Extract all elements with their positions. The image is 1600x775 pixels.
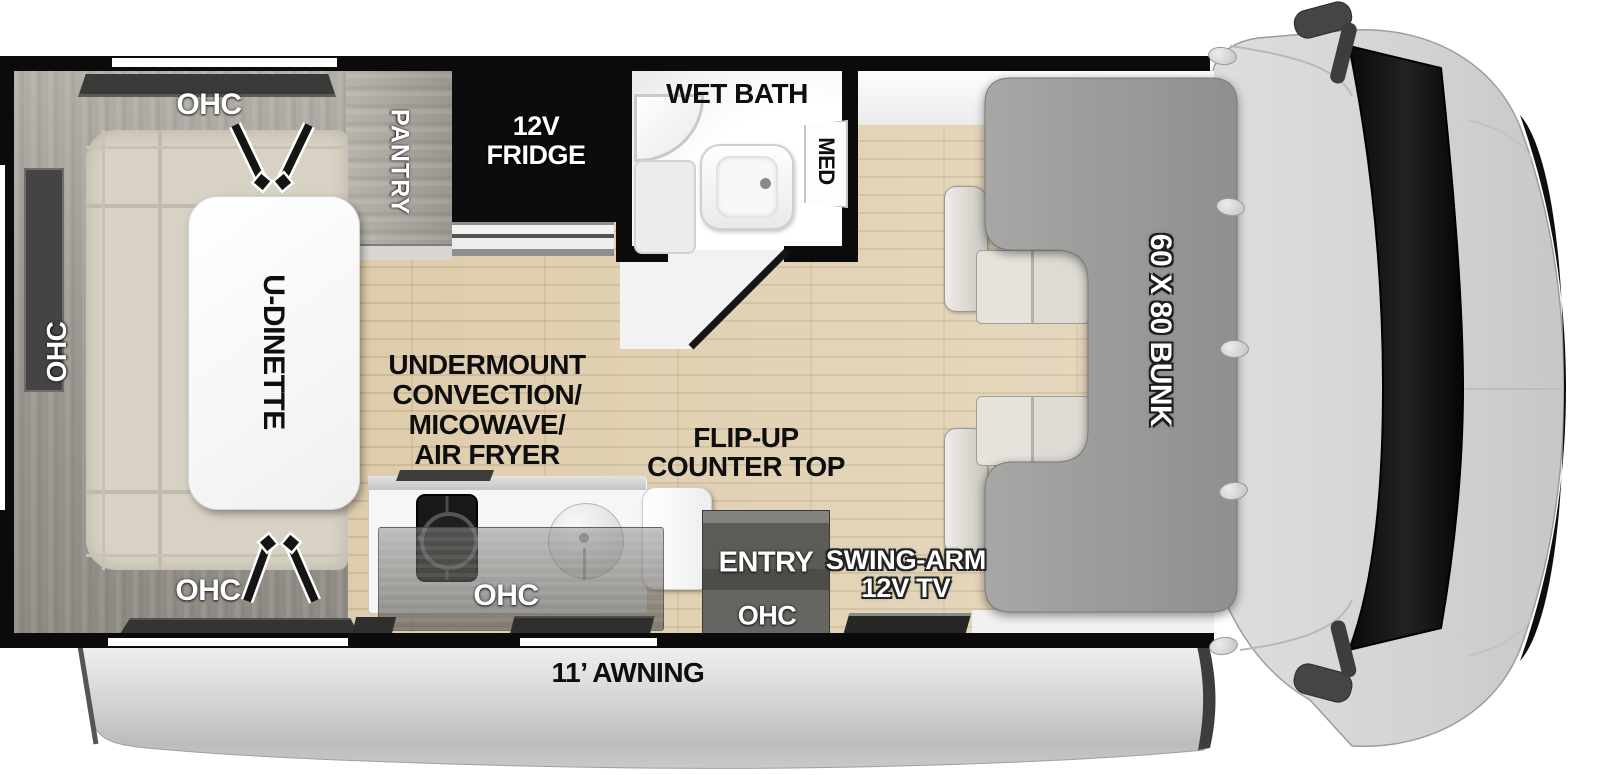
bench-backrest-line xyxy=(86,146,348,149)
med-label: MED xyxy=(813,137,839,184)
pantry-label: PANTRY xyxy=(385,109,414,215)
tv-label-line2: 12V TV xyxy=(786,574,1026,602)
appliance-line1: UNDERMOUNT xyxy=(347,350,627,380)
ohc-label-dinette-left: OHC xyxy=(41,322,73,383)
cab-step-area-bottom xyxy=(972,610,1214,634)
passenger-seat-cushion xyxy=(976,250,1090,324)
wet-bath-label: WET BATH xyxy=(666,78,808,110)
ohc-label-kitchen: OHC xyxy=(473,579,538,613)
bench-backrest-line xyxy=(102,130,105,570)
bath-wall-left xyxy=(616,56,632,262)
side-mirror-top xyxy=(1291,0,1358,85)
awning-label: 11’ AWNING xyxy=(552,657,705,689)
cab-step-area-top xyxy=(846,71,1214,125)
fridge-shelves xyxy=(452,222,614,256)
mount-oval xyxy=(1220,340,1249,358)
bath-wall-stub-right xyxy=(784,246,858,262)
rv-floorplan: OHC OHC OHC U-DINETTE PANTRY 12V FRIDGE … xyxy=(0,0,1600,775)
ohc-label-dinette-bottom: OHC xyxy=(175,574,240,608)
ohc-label-entry: OHC xyxy=(738,601,797,632)
appliance-line4: AIR FRYER xyxy=(347,440,627,470)
tv-label: SWING-ARM 12V TV xyxy=(786,546,1026,602)
hood-seam-bottom xyxy=(1468,616,1532,656)
window-left xyxy=(0,165,5,510)
tv-label-line1: SWING-ARM xyxy=(786,546,1026,574)
cab-body xyxy=(1210,30,1564,747)
window-bottom-center xyxy=(520,638,657,646)
flip-up-line1: FLIP-UP xyxy=(606,423,886,452)
hood-seam-top xyxy=(1468,120,1532,160)
windshield xyxy=(1349,46,1463,650)
mount-oval xyxy=(1207,45,1238,67)
flip-up-line2: COUNTER TOP xyxy=(606,452,886,481)
kitchen-window-small xyxy=(352,617,396,634)
side-mirror-bottom xyxy=(1291,619,1358,705)
fridge-label: 12V FRIDGE xyxy=(456,112,616,170)
driver-seat-cushion xyxy=(976,396,1090,466)
mount-oval xyxy=(1218,480,1249,502)
pantry-shelf-lip xyxy=(346,244,452,260)
fridge-label-line1: 12V xyxy=(456,112,616,141)
appliance-label: UNDERMOUNT CONVECTION/ MICOWAVE/ AIR FRY… xyxy=(347,350,627,470)
bench-seam xyxy=(158,130,162,570)
awning-right-edge xyxy=(1197,646,1216,750)
appliance-line3: MICOWAVE/ xyxy=(347,410,627,440)
roof-seam-bottom xyxy=(1240,600,1352,650)
u-dinette-label: U-DINETTE xyxy=(256,274,290,430)
window-bottom-left xyxy=(108,638,348,646)
fridge-label-line2: FRIDGE xyxy=(456,141,616,170)
awning-left-edge xyxy=(80,646,96,744)
toilet xyxy=(700,144,794,230)
mount-oval xyxy=(1215,196,1246,218)
toilet-flush xyxy=(760,178,771,189)
flip-up-label: FLIP-UP COUNTER TOP xyxy=(606,423,886,481)
front-bumper xyxy=(1520,115,1566,661)
ohc-label-dinette-top: OHC xyxy=(176,88,241,122)
counter-back-trim xyxy=(396,470,494,481)
bunk-label: 60 X 80 BUNK xyxy=(1143,234,1177,426)
shower-pan xyxy=(634,160,696,254)
appliance-line2: CONVECTION/ xyxy=(347,380,627,410)
roof-seam-top xyxy=(1230,46,1352,96)
window-top xyxy=(112,58,337,67)
bench-backrest-line xyxy=(86,554,348,557)
